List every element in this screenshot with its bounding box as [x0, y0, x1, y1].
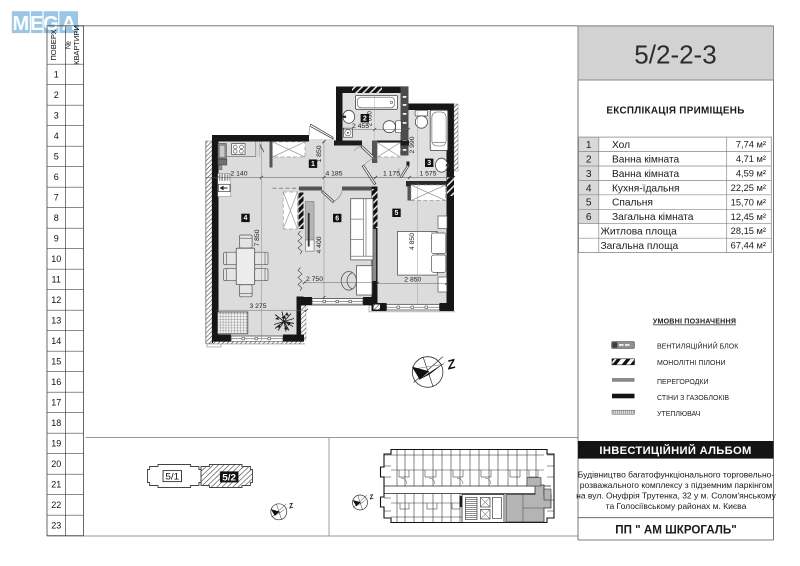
svg-text:67,44 м²: 67,44 м² [731, 241, 766, 251]
svg-text:3 275: 3 275 [249, 303, 266, 310]
svg-text:2: 2 [586, 154, 592, 165]
svg-text:14: 14 [51, 336, 61, 346]
svg-text:16: 16 [51, 377, 61, 387]
svg-text:ІНВЕСТИЦІЙНИЙ АЛЬБОМ: ІНВЕСТИЦІЙНИЙ АЛЬБОМ [599, 444, 751, 457]
svg-text:2 850: 2 850 [404, 277, 421, 284]
svg-text:5: 5 [54, 152, 59, 162]
svg-text:18: 18 [51, 418, 61, 428]
svg-text:9: 9 [54, 234, 59, 244]
svg-text:8: 8 [54, 213, 59, 223]
svg-text:M: M [12, 13, 29, 35]
svg-text:Загальна площа: Загальна площа [601, 241, 679, 252]
svg-text:ЕКСПЛІКАЦІЯ ПРИМІЩЕНЬ: ЕКСПЛІКАЦІЯ ПРИМІЩЕНЬ [606, 106, 744, 117]
svg-text:5/2: 5/2 [222, 473, 236, 484]
svg-text:17: 17 [51, 398, 61, 408]
svg-text:19: 19 [51, 439, 61, 449]
svg-text:10: 10 [51, 254, 61, 264]
svg-text:3: 3 [586, 169, 592, 180]
svg-text:на вул. Онуфрія Трутенка, 32 у: на вул. Онуфрія Трутенка, 32 у м. Солом'… [576, 491, 776, 501]
svg-text:4: 4 [244, 215, 248, 222]
svg-text:6: 6 [335, 215, 339, 222]
svg-text:11: 11 [52, 275, 61, 285]
svg-text:4 400: 4 400 [316, 236, 323, 253]
svg-text:розважального комплексу з підз: розважального комплексу з підземним парк… [580, 480, 773, 490]
svg-text:МОНОЛІТНІ ПІЛОНИ: МОНОЛІТНІ ПІЛОНИ [657, 360, 726, 367]
svg-text:5/1: 5/1 [165, 472, 179, 483]
svg-text:СТІНИ З ГАЗОБЛОКІВ: СТІНИ З ГАЗОБЛОКІВ [657, 395, 729, 402]
svg-text:22,25 м²: 22,25 м² [731, 183, 766, 193]
svg-text:Спальня: Спальня [612, 198, 653, 209]
svg-text:Загальна кімната: Загальна кімната [612, 212, 694, 223]
svg-text:2 990: 2 990 [409, 136, 416, 153]
svg-text:21: 21 [51, 480, 61, 490]
svg-text:КВАРТИРИ: КВАРТИРИ [72, 25, 81, 65]
svg-text:1 175: 1 175 [383, 170, 400, 177]
svg-text:УМОВНІ ПОЗНАЧЕННЯ: УМОВНІ ПОЗНАЧЕННЯ [653, 318, 736, 326]
svg-text:Будівництво багатофункціональн: Будівництво багатофункціонального торгов… [578, 470, 775, 480]
svg-text:7 850: 7 850 [254, 229, 261, 246]
svg-text:5/2-2-3: 5/2-2-3 [634, 40, 716, 70]
svg-text:5: 5 [586, 198, 592, 209]
svg-text:3: 3 [54, 111, 59, 121]
svg-text:Ванна кімната: Ванна кімната [612, 169, 680, 180]
svg-text:УТЕПЛЮВАЧ: УТЕПЛЮВАЧ [657, 411, 701, 418]
svg-text:28,15 м²: 28,15 м² [731, 226, 766, 236]
svg-text:12,45 м²: 12,45 м² [731, 212, 766, 222]
svg-text:3: 3 [427, 160, 431, 167]
svg-text:ВЕНТИЛЯЦІЙНИЙ БЛОК: ВЕНТИЛЯЦІЙНИЙ БЛОК [657, 342, 739, 351]
svg-text:ПОВЕРХ: ПОВЕРХ [49, 29, 58, 60]
svg-text:та Голосіївському районах м. К: та Голосіївському районах м. Києва [606, 501, 747, 511]
svg-text:13: 13 [51, 316, 61, 326]
svg-text:4 185: 4 185 [325, 170, 342, 177]
svg-text:Кухня-їдальня: Кухня-їдальня [612, 183, 680, 194]
svg-text:ПП " АМ ШКРОГАЛЬ": ПП " АМ ШКРОГАЛЬ" [615, 524, 737, 537]
svg-text:1: 1 [311, 161, 315, 168]
svg-text:2 750: 2 750 [306, 276, 323, 283]
svg-text:2 140: 2 140 [230, 170, 247, 177]
svg-text:12: 12 [51, 295, 61, 305]
svg-text:4,59 м²: 4,59 м² [736, 168, 766, 178]
svg-text:1 575: 1 575 [419, 170, 436, 177]
svg-text:E: E [30, 13, 43, 35]
svg-text:4: 4 [54, 131, 59, 141]
svg-text:Ванна кімната: Ванна кімната [612, 154, 680, 165]
svg-text:4 850: 4 850 [409, 233, 416, 250]
svg-text:6: 6 [586, 212, 592, 223]
svg-text:20: 20 [51, 459, 61, 469]
svg-text:15: 15 [51, 357, 61, 367]
svg-text:Житлова площа: Житлова площа [601, 227, 678, 238]
svg-text:1: 1 [586, 140, 592, 151]
svg-text:23: 23 [51, 521, 61, 531]
svg-text:1: 1 [54, 70, 59, 80]
svg-text:7,74 м²: 7,74 м² [736, 140, 766, 150]
svg-text:Хол: Хол [612, 140, 630, 151]
svg-text:ПЕРЕГОРОДКИ: ПЕРЕГОРОДКИ [657, 379, 709, 386]
svg-text:6: 6 [54, 172, 59, 182]
svg-text:4: 4 [586, 183, 592, 194]
svg-text:15,70 м²: 15,70 м² [731, 197, 766, 207]
svg-text:5: 5 [395, 210, 399, 217]
svg-text:4,71 м²: 4,71 м² [736, 154, 766, 164]
svg-text:2: 2 [54, 90, 59, 100]
svg-text:2: 2 [363, 116, 367, 123]
svg-text:7: 7 [54, 193, 59, 203]
svg-text:22: 22 [51, 500, 61, 510]
